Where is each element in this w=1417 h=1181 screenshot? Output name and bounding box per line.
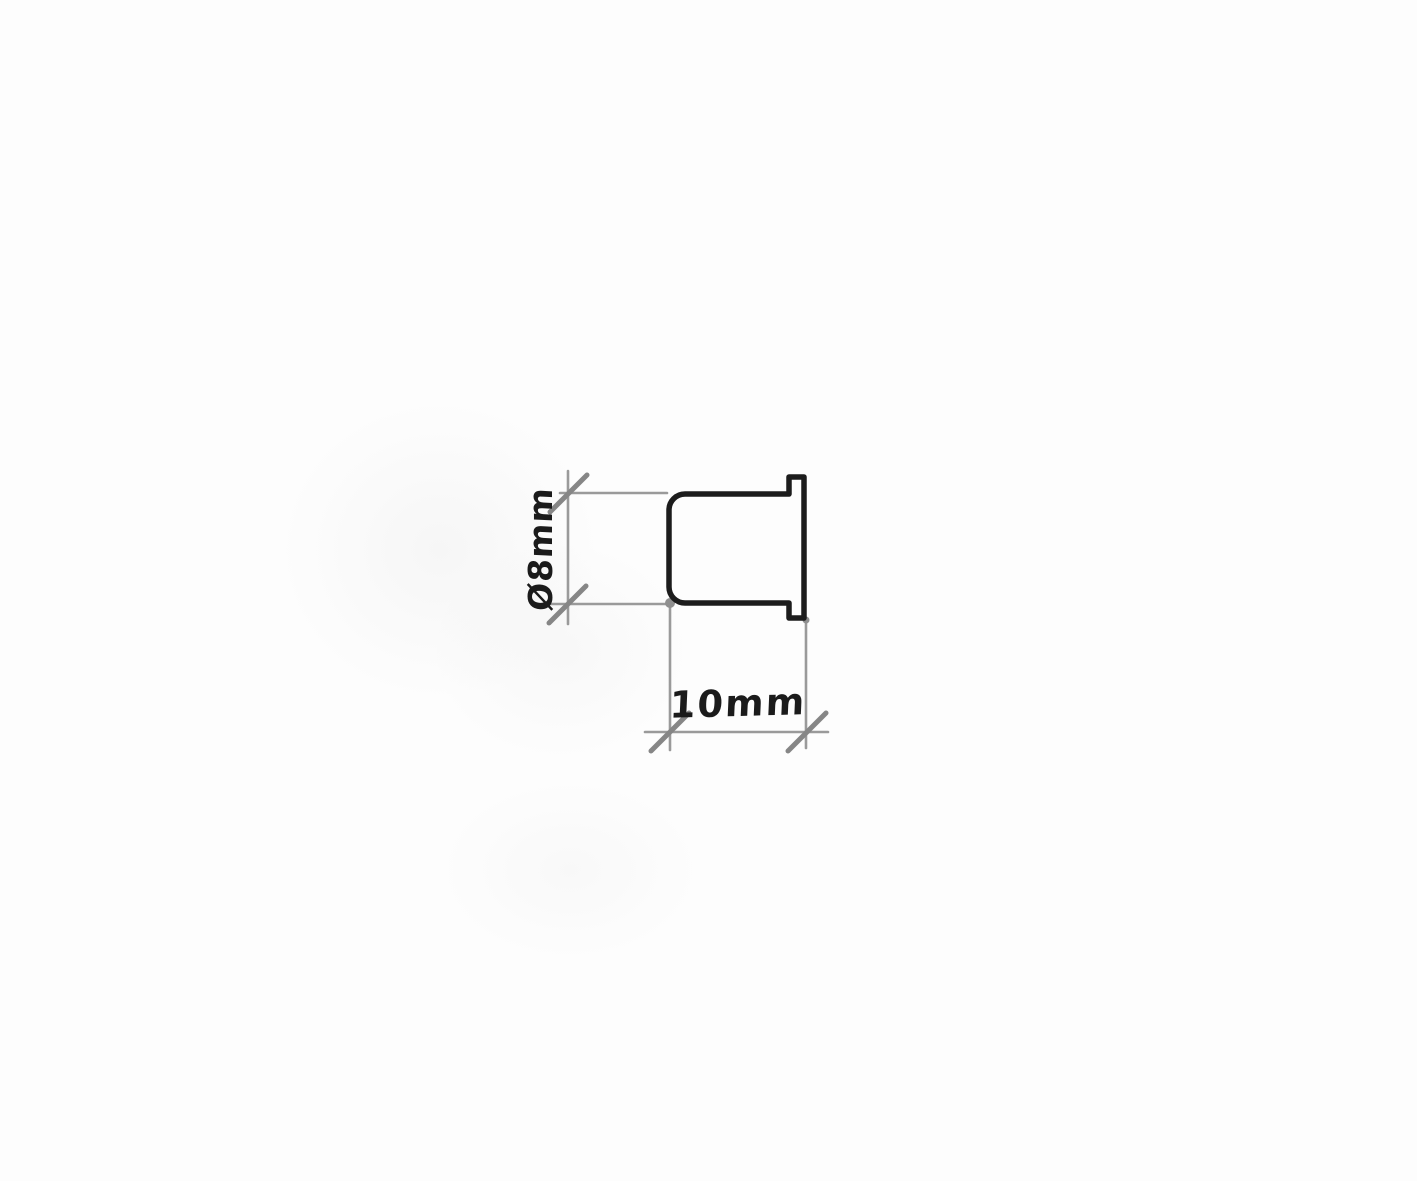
sketch-page: Ø8mm 10mm: [0, 0, 1417, 1181]
length-dimension-label: 10mm: [655, 680, 821, 728]
sketch-canvas: [0, 0, 1417, 1181]
diameter-dimension-label: Ø8mm: [520, 478, 562, 620]
part-outline: [669, 477, 804, 618]
